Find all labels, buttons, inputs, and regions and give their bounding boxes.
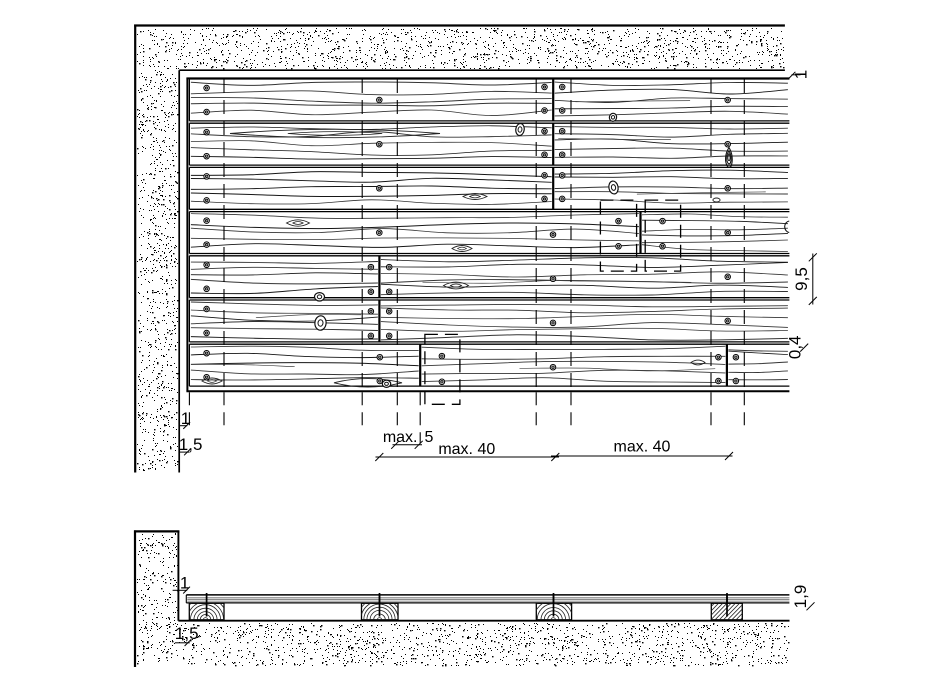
svg-text:5: 5 <box>425 429 434 446</box>
svg-text:9,5: 9,5 <box>792 267 811 291</box>
svg-text:max. 40: max. 40 <box>614 439 671 456</box>
svg-text:1: 1 <box>181 409 190 428</box>
svg-text:1,5: 1,5 <box>179 435 203 454</box>
svg-text:max. 40: max. 40 <box>438 441 495 458</box>
svg-text:1,9: 1,9 <box>791 585 810 609</box>
svg-text:1: 1 <box>180 574 189 593</box>
svg-text:0,4: 0,4 <box>786 335 805 359</box>
svg-text:max.: max. <box>383 429 418 446</box>
svg-text:1: 1 <box>792 70 811 79</box>
svg-text:1,5: 1,5 <box>175 624 199 643</box>
